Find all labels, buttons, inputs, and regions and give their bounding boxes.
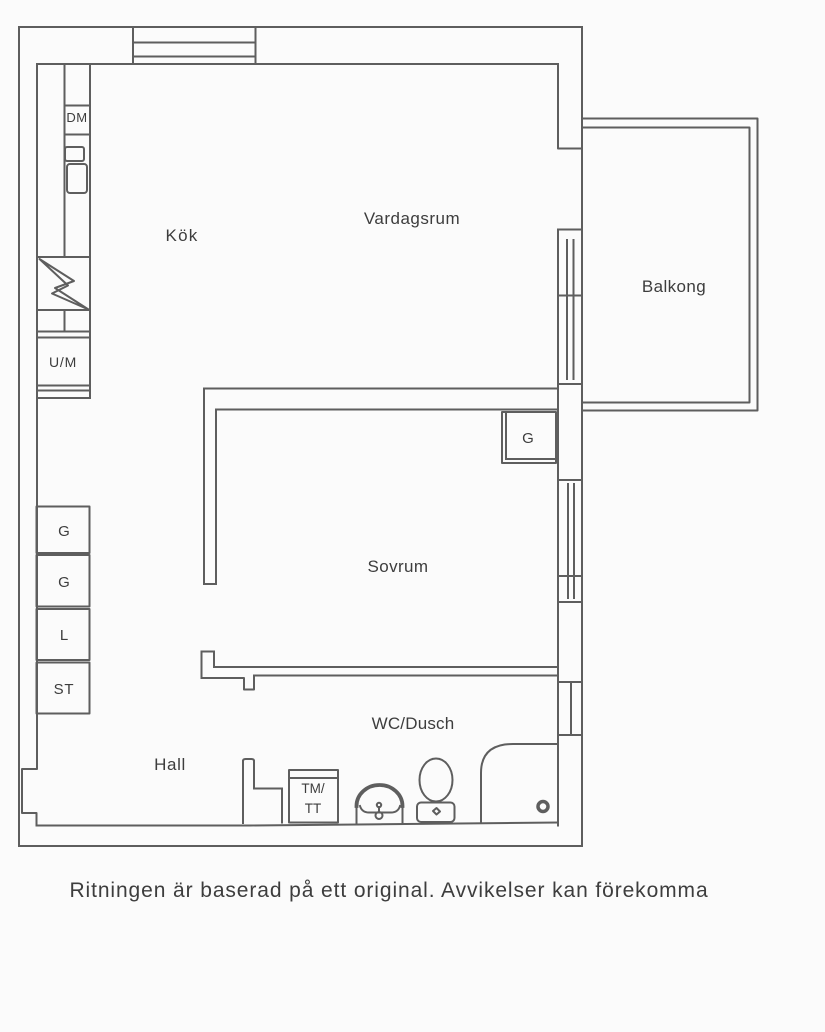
svg-text:L: L [60, 627, 68, 644]
svg-text:DM: DM [66, 110, 87, 125]
svg-text:G: G [58, 523, 70, 540]
svg-text:TM/: TM/ [301, 781, 324, 796]
svg-text:WC/Dusch: WC/Dusch [372, 714, 455, 733]
svg-text:Hall: Hall [154, 755, 186, 774]
svg-text:U/M: U/M [49, 354, 77, 370]
svg-text:Ritningen är baserad på ett or: Ritningen är baserad på ett original. Av… [69, 879, 708, 902]
svg-text:Kök: Kök [166, 226, 199, 245]
svg-text:G: G [58, 574, 70, 591]
svg-text:ST: ST [54, 681, 75, 698]
svg-text:G: G [522, 430, 534, 447]
svg-text:Vardagsrum: Vardagsrum [364, 209, 460, 228]
svg-text:Balkong: Balkong [642, 277, 706, 296]
svg-text:Sovrum: Sovrum [368, 557, 429, 576]
svg-text:TT: TT [305, 801, 322, 816]
